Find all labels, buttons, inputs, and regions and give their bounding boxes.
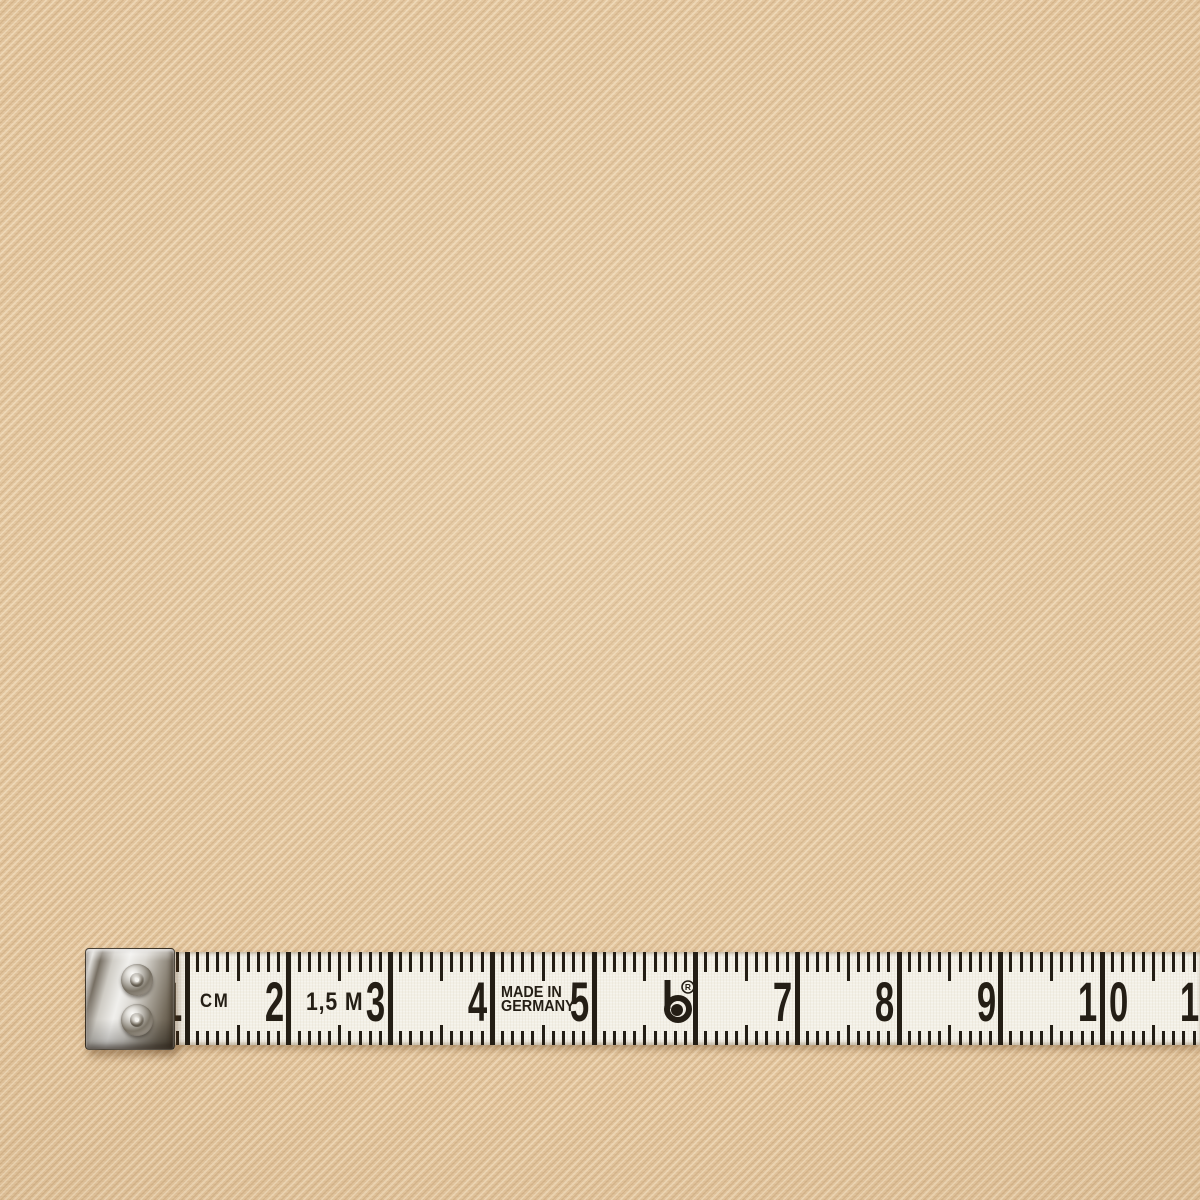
tick-mark-1mm — [521, 1031, 524, 1045]
tick-mark-1mm — [196, 1031, 199, 1045]
tick-mark-1mm — [1030, 1031, 1033, 1045]
tick-mark-1mm — [1030, 952, 1033, 972]
tick-mark-1mm — [308, 1031, 311, 1045]
tick-mark-cm — [998, 952, 1003, 1045]
tick-mark-1mm — [430, 1031, 433, 1045]
tick-mark-1mm — [633, 952, 636, 972]
tick-mark-1mm — [735, 952, 738, 972]
tick-mark-1mm — [1111, 952, 1114, 972]
tick-mark-1mm — [267, 952, 270, 972]
tick-mark-1mm — [918, 952, 921, 972]
tick-mark-1mm — [867, 952, 870, 972]
tick-mark-1mm — [481, 1031, 484, 1045]
tick-mark-1mm — [755, 952, 758, 972]
tick-mark-1mm — [582, 1031, 585, 1045]
tick-mark-1mm — [1040, 1031, 1043, 1045]
tick-mark-1mm — [857, 952, 860, 972]
tick-mark-1mm — [1111, 1031, 1114, 1045]
tick-mark-1mm — [1060, 1031, 1063, 1045]
tick-mark-1mm — [1172, 1031, 1175, 1045]
cm-number: 1 — [1078, 980, 1097, 1024]
tick-mark-1mm — [786, 1031, 789, 1045]
tick-mark-1mm — [979, 952, 982, 972]
tick-mark-1mm — [1182, 952, 1185, 972]
tick-mark-5mm — [237, 1025, 240, 1045]
tick-mark-1mm — [420, 1031, 423, 1045]
tick-mark-1mm — [816, 952, 819, 972]
tick-mark-1mm — [654, 952, 657, 972]
tick-mark-1mm — [765, 1031, 768, 1045]
tick-mark-1mm — [470, 952, 473, 972]
tick-mark-1mm — [1009, 1031, 1012, 1045]
tick-mark-1mm — [674, 952, 677, 972]
tick-mark-1mm — [969, 1031, 972, 1045]
tick-mark-1mm — [725, 1031, 728, 1045]
tick-mark-1mm — [816, 1031, 819, 1045]
tick-mark-1mm — [654, 1031, 657, 1045]
tick-mark-1mm — [633, 1031, 636, 1045]
tick-mark-1mm — [867, 1031, 870, 1045]
tick-mark-1mm — [369, 952, 372, 972]
tick-mark-1mm — [379, 952, 382, 972]
tick-mark-1mm — [704, 1031, 707, 1045]
tick-mark-5mm — [745, 1025, 748, 1045]
tick-mark-5mm — [542, 1025, 545, 1045]
tick-mark-1mm — [247, 952, 250, 972]
tick-mark-5mm — [338, 1025, 341, 1045]
tick-mark-1mm — [562, 1031, 565, 1045]
tick-mark-1mm — [674, 1031, 677, 1045]
tick-mark-1mm — [918, 1031, 921, 1045]
tick-mark-1mm — [511, 952, 514, 972]
tick-mark-1mm — [460, 952, 463, 972]
tick-mark-1mm — [1162, 952, 1165, 972]
tick-mark-cm — [693, 952, 698, 1045]
cm-number: 8 — [875, 980, 894, 1024]
tick-mark-1mm — [1162, 1031, 1165, 1045]
tick-mark-1mm — [206, 1031, 209, 1045]
tick-mark-1mm — [735, 1031, 738, 1045]
svg-text:R: R — [685, 982, 691, 992]
tick-mark-1mm — [308, 952, 311, 972]
tick-mark-1mm — [826, 952, 829, 972]
tick-mark-1mm — [715, 952, 718, 972]
tick-mark-1mm — [684, 952, 687, 972]
clip-rivet-bottom — [121, 1004, 153, 1036]
tick-mark-1mm — [552, 1031, 555, 1045]
rivet-hole — [130, 973, 144, 987]
tick-mark-1mm — [1020, 952, 1023, 972]
tick-mark-1mm — [1193, 952, 1196, 972]
tick-mark-1mm — [348, 1031, 351, 1045]
tick-mark-1mm — [277, 1031, 280, 1045]
tick-mark-1mm — [328, 1031, 331, 1045]
tick-mark-1mm — [979, 1031, 982, 1045]
brand-logo-icon: R — [660, 977, 696, 1024]
tick-mark-1mm — [776, 952, 779, 972]
tick-mark-1mm — [1009, 952, 1012, 972]
tick-mark-1mm — [420, 952, 423, 972]
tick-mark-1mm — [399, 952, 402, 972]
tick-mark-1mm — [1081, 1031, 1084, 1045]
tick-mark-1mm — [989, 1031, 992, 1045]
tick-mark-1mm — [786, 952, 789, 972]
tick-mark-1mm — [887, 952, 890, 972]
tick-mark-1mm — [226, 1031, 229, 1045]
tick-mark-1mm — [1020, 1031, 1023, 1045]
tick-mark-1mm — [470, 1031, 473, 1045]
tick-mark-5mm — [948, 952, 951, 981]
tick-mark-1mm — [247, 1031, 250, 1045]
tick-mark-1mm — [328, 952, 331, 972]
clip-rivet-top — [121, 964, 153, 996]
tick-mark-cm — [286, 952, 291, 1045]
tick-mark-1mm — [837, 1031, 840, 1045]
tick-mark-1mm — [623, 1031, 626, 1045]
tick-mark-1mm — [206, 952, 209, 972]
tick-mark-1mm — [765, 952, 768, 972]
tick-mark-1mm — [196, 952, 199, 972]
tick-mark-1mm — [369, 1031, 372, 1045]
tick-mark-5mm — [338, 952, 341, 981]
tick-mark-1mm — [277, 952, 280, 972]
tick-mark-1mm — [877, 1031, 880, 1045]
tick-mark-1mm — [1060, 952, 1063, 972]
tick-mark-1mm — [531, 952, 534, 972]
tick-mark-1mm — [806, 952, 809, 972]
tick-mark-1mm — [1172, 952, 1175, 972]
tick-mark-cm — [795, 952, 800, 1045]
tick-mark-1mm — [298, 952, 301, 972]
tick-mark-1mm — [216, 952, 219, 972]
tick-mark-5mm — [1152, 1025, 1155, 1045]
tick-mark-1mm — [1081, 952, 1084, 972]
tick-mark-1mm — [572, 1031, 575, 1045]
tick-mark-5mm — [1152, 952, 1155, 981]
tick-mark-1mm — [1121, 952, 1124, 972]
tick-mark-1mm — [1142, 1031, 1145, 1045]
tick-mark-5mm — [847, 1025, 850, 1045]
tick-mark-cm — [388, 952, 393, 1045]
tick-mark-1mm — [359, 1031, 362, 1045]
tick-mark-1mm — [664, 952, 667, 972]
tick-mark-1mm — [1091, 952, 1094, 972]
measuring-tape: CM 1,5 M MADE IN GERMANY R 123457891011 — [150, 952, 1200, 1045]
rivet-highlight — [135, 978, 139, 982]
tick-mark-5mm — [542, 952, 545, 981]
tick-mark-1mm — [1182, 1031, 1185, 1045]
tick-mark-1mm — [989, 952, 992, 972]
tick-mark-5mm — [745, 952, 748, 981]
tick-mark-1mm — [826, 1031, 829, 1045]
tick-mark-1mm — [359, 952, 362, 972]
tick-mark-1mm — [613, 952, 616, 972]
tick-mark-1mm — [928, 1031, 931, 1045]
tick-mark-1mm — [725, 952, 728, 972]
tick-mark-1mm — [318, 952, 321, 972]
tick-mark-1mm — [552, 952, 555, 972]
tick-mark-1mm — [531, 1031, 534, 1045]
cm-number: 4 — [468, 980, 487, 1024]
tick-mark-1mm — [959, 1031, 962, 1045]
tick-mark-1mm — [257, 952, 260, 972]
tick-mark-1mm — [226, 952, 229, 972]
tick-mark-5mm — [847, 952, 850, 981]
tick-mark-1mm — [379, 1031, 382, 1045]
tick-mark-5mm — [440, 952, 443, 981]
tick-mark-5mm — [643, 952, 646, 981]
tick-mark-1mm — [938, 952, 941, 972]
tick-mark-1mm — [776, 1031, 779, 1045]
tick-mark-1mm — [409, 1031, 412, 1045]
tick-mark-1mm — [1121, 1031, 1124, 1045]
made-in-line2: GERMANY — [501, 1000, 575, 1014]
tick-mark-cm — [897, 952, 902, 1045]
tick-mark-1mm — [501, 1031, 504, 1045]
tape-length-label: 1,5 M — [306, 992, 363, 1012]
tick-mark-1mm — [216, 1031, 219, 1045]
tick-mark-1mm — [969, 952, 972, 972]
tick-mark-1mm — [1132, 952, 1135, 972]
tick-mark-1mm — [318, 1031, 321, 1045]
cm-number: 2 — [265, 980, 284, 1024]
tick-mark-1mm — [857, 1031, 860, 1045]
tick-mark-1mm — [257, 1031, 260, 1045]
tick-mark-1mm — [908, 1031, 911, 1045]
tick-mark-1mm — [887, 1031, 890, 1045]
tick-mark-5mm — [237, 952, 240, 981]
tick-mark-1mm — [460, 1031, 463, 1045]
cm-number: 5 — [570, 980, 589, 1024]
tick-mark-1mm — [837, 952, 840, 972]
tick-mark-5mm — [1050, 1025, 1053, 1045]
tick-mark-1mm — [267, 1031, 270, 1045]
tick-mark-1mm — [1091, 1031, 1094, 1045]
tick-mark-1mm — [603, 1031, 606, 1045]
tick-mark-5mm — [440, 1025, 443, 1045]
tick-mark-1mm — [755, 1031, 758, 1045]
cm-number: 0 — [1109, 980, 1128, 1024]
cm-number: 9 — [976, 980, 995, 1024]
tick-mark-1mm — [1142, 952, 1145, 972]
tick-mark-1mm — [481, 952, 484, 972]
tick-mark-1mm — [409, 952, 412, 972]
tick-mark-1mm — [1070, 1031, 1073, 1045]
cm-number: 3 — [366, 980, 385, 1024]
cm-number: 1 — [1180, 980, 1199, 1024]
tick-mark-1mm — [501, 952, 504, 972]
tick-mark-1mm — [704, 952, 707, 972]
tick-mark-1mm — [1193, 1031, 1196, 1045]
tick-mark-5mm — [1050, 952, 1053, 981]
tick-mark-1mm — [877, 952, 880, 972]
tick-mark-cm — [490, 952, 495, 1045]
tape-end-metal-clip — [85, 948, 175, 1050]
tick-mark-1mm — [623, 952, 626, 972]
cm-number: 7 — [773, 980, 792, 1024]
tick-mark-cm — [592, 952, 597, 1045]
tick-mark-cm — [1100, 952, 1105, 1045]
tick-mark-1mm — [511, 1031, 514, 1045]
rivet-highlight — [135, 1018, 139, 1022]
tick-mark-5mm — [643, 1025, 646, 1045]
tick-mark-1mm — [399, 1031, 402, 1045]
tick-mark-1mm — [908, 952, 911, 972]
tick-mark-1mm — [298, 1031, 301, 1045]
tick-mark-1mm — [572, 952, 575, 972]
tick-mark-5mm — [948, 1025, 951, 1045]
tick-mark-1mm — [1070, 952, 1073, 972]
tick-mark-1mm — [664, 1031, 667, 1045]
unit-label: CM — [200, 995, 230, 1009]
tick-mark-1mm — [806, 1031, 809, 1045]
tick-mark-1mm — [582, 952, 585, 972]
fabric-photo: CM 1,5 M MADE IN GERMANY R 123457891011 — [0, 0, 1200, 1200]
tick-mark-1mm — [450, 952, 453, 972]
tick-mark-1mm — [603, 952, 606, 972]
tick-mark-1mm — [562, 952, 565, 972]
rivet-hole — [130, 1013, 144, 1027]
tick-mark-1mm — [1132, 1031, 1135, 1045]
tick-mark-1mm — [1040, 952, 1043, 972]
tick-mark-1mm — [176, 952, 179, 972]
tick-mark-1mm — [348, 952, 351, 972]
tick-mark-1mm — [176, 1031, 179, 1045]
tick-mark-1mm — [613, 1031, 616, 1045]
tick-mark-1mm — [928, 952, 931, 972]
tick-mark-1mm — [450, 1031, 453, 1045]
tick-mark-1mm — [938, 1031, 941, 1045]
tick-mark-cm — [185, 952, 190, 1045]
tick-mark-1mm — [715, 1031, 718, 1045]
tick-mark-1mm — [521, 952, 524, 972]
tick-mark-1mm — [430, 952, 433, 972]
tick-mark-1mm — [684, 1031, 687, 1045]
made-in-germany-label: MADE IN GERMANY — [501, 986, 575, 1013]
tick-mark-1mm — [959, 952, 962, 972]
